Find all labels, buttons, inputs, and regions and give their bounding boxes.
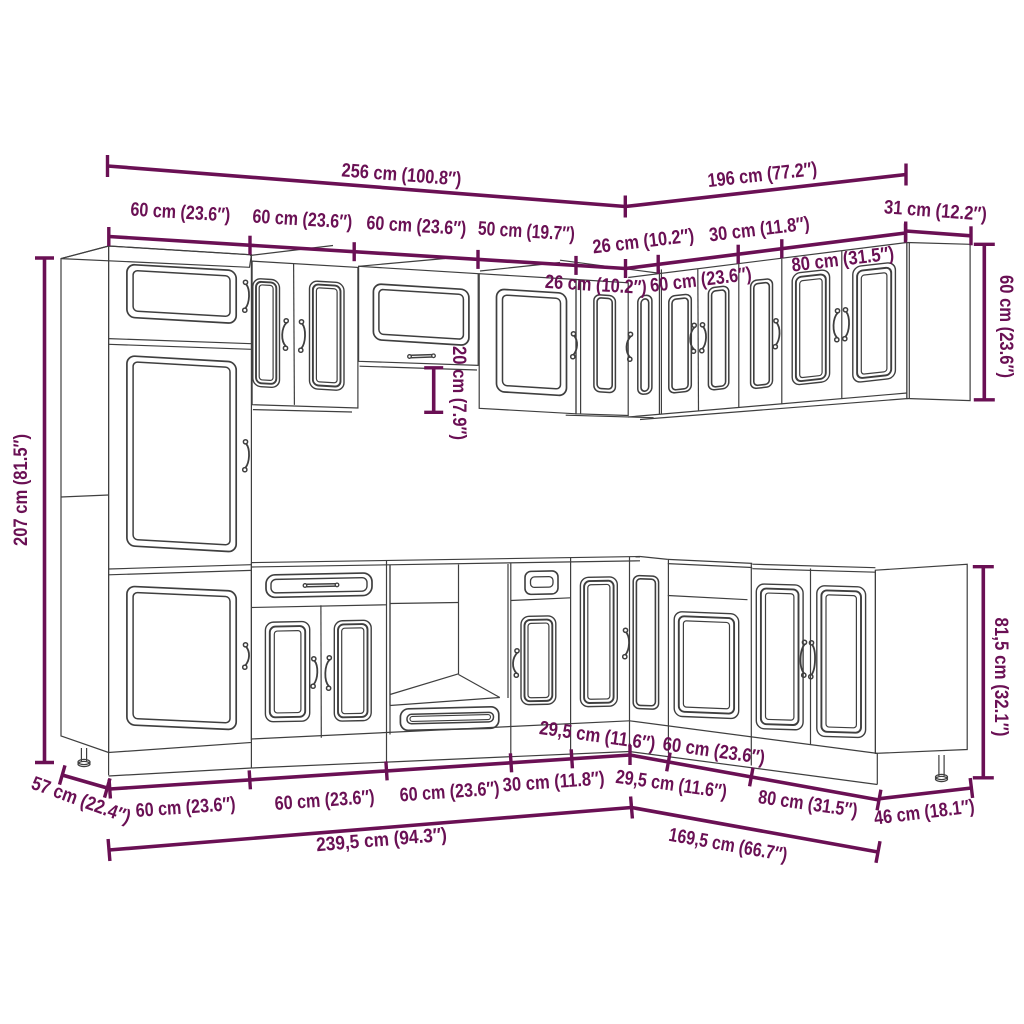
svg-text:81,5 cm (32.1″): 81,5 cm (32.1″) <box>990 618 1012 737</box>
svg-text:207 cm (81.5″): 207 cm (81.5″) <box>10 434 32 546</box>
svg-text:20 cm (7.9″): 20 cm (7.9″) <box>448 346 470 440</box>
svg-text:60 cm (23.6″): 60 cm (23.6″) <box>995 275 1017 378</box>
